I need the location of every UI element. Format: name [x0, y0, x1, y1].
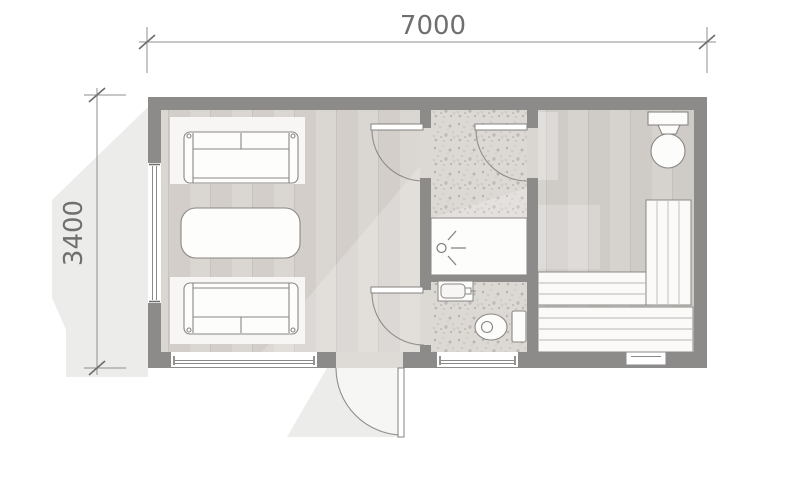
- door-leaf: [371, 124, 423, 130]
- doorway-patch-wc: [420, 290, 431, 345]
- door-leaf: [371, 287, 423, 293]
- coffee-table: [181, 208, 300, 258]
- sink-tap: [465, 288, 471, 294]
- toilet-bowl: [475, 314, 507, 340]
- partition-living-bath-bottom: [420, 345, 431, 352]
- doorway-patch-sauna: [527, 128, 538, 178]
- sink: [438, 281, 476, 301]
- sofa-corner-left: [187, 328, 191, 332]
- doorway-patch-shower: [420, 128, 431, 178]
- bench-middle: [538, 272, 646, 305]
- window-frame: [171, 352, 317, 367]
- toilet-tank: [512, 311, 526, 342]
- sofa-corner-right: [291, 328, 295, 332]
- dim-height-label: 3400: [59, 200, 89, 266]
- sauna-heater-bracket: [658, 125, 680, 134]
- window-left: [148, 163, 161, 303]
- sink-basin: [441, 284, 465, 298]
- sauna-light-patch-door: [538, 112, 558, 180]
- window-living-bottom: [171, 352, 317, 367]
- sofa-bottom: [184, 283, 298, 334]
- door-leaf: [475, 124, 527, 130]
- window-wc-bottom: [437, 352, 518, 367]
- partition-bath-sauna-main: [527, 178, 538, 352]
- doorway-patch-entry: [336, 352, 403, 368]
- sofa-corner-left: [187, 134, 191, 138]
- sauna-heater-mount: [648, 112, 688, 125]
- sauna-vent: [626, 352, 666, 365]
- partition-living-bath-mid: [420, 178, 431, 290]
- sofa-corner-right: [291, 134, 295, 138]
- window-frame: [148, 163, 161, 303]
- floor-plan-canvas: 7000 3400: [0, 0, 800, 500]
- door-leaf: [398, 368, 404, 437]
- window-frame: [437, 352, 518, 367]
- dim-width-label: 7000: [400, 11, 466, 41]
- partition-bath-sauna-top: [527, 110, 538, 128]
- floor-plan-drawing: 7000 3400: [0, 0, 800, 500]
- sauna-heater-body: [651, 134, 685, 168]
- sauna-light-patch: [538, 205, 600, 269]
- sofa-top: [184, 132, 298, 183]
